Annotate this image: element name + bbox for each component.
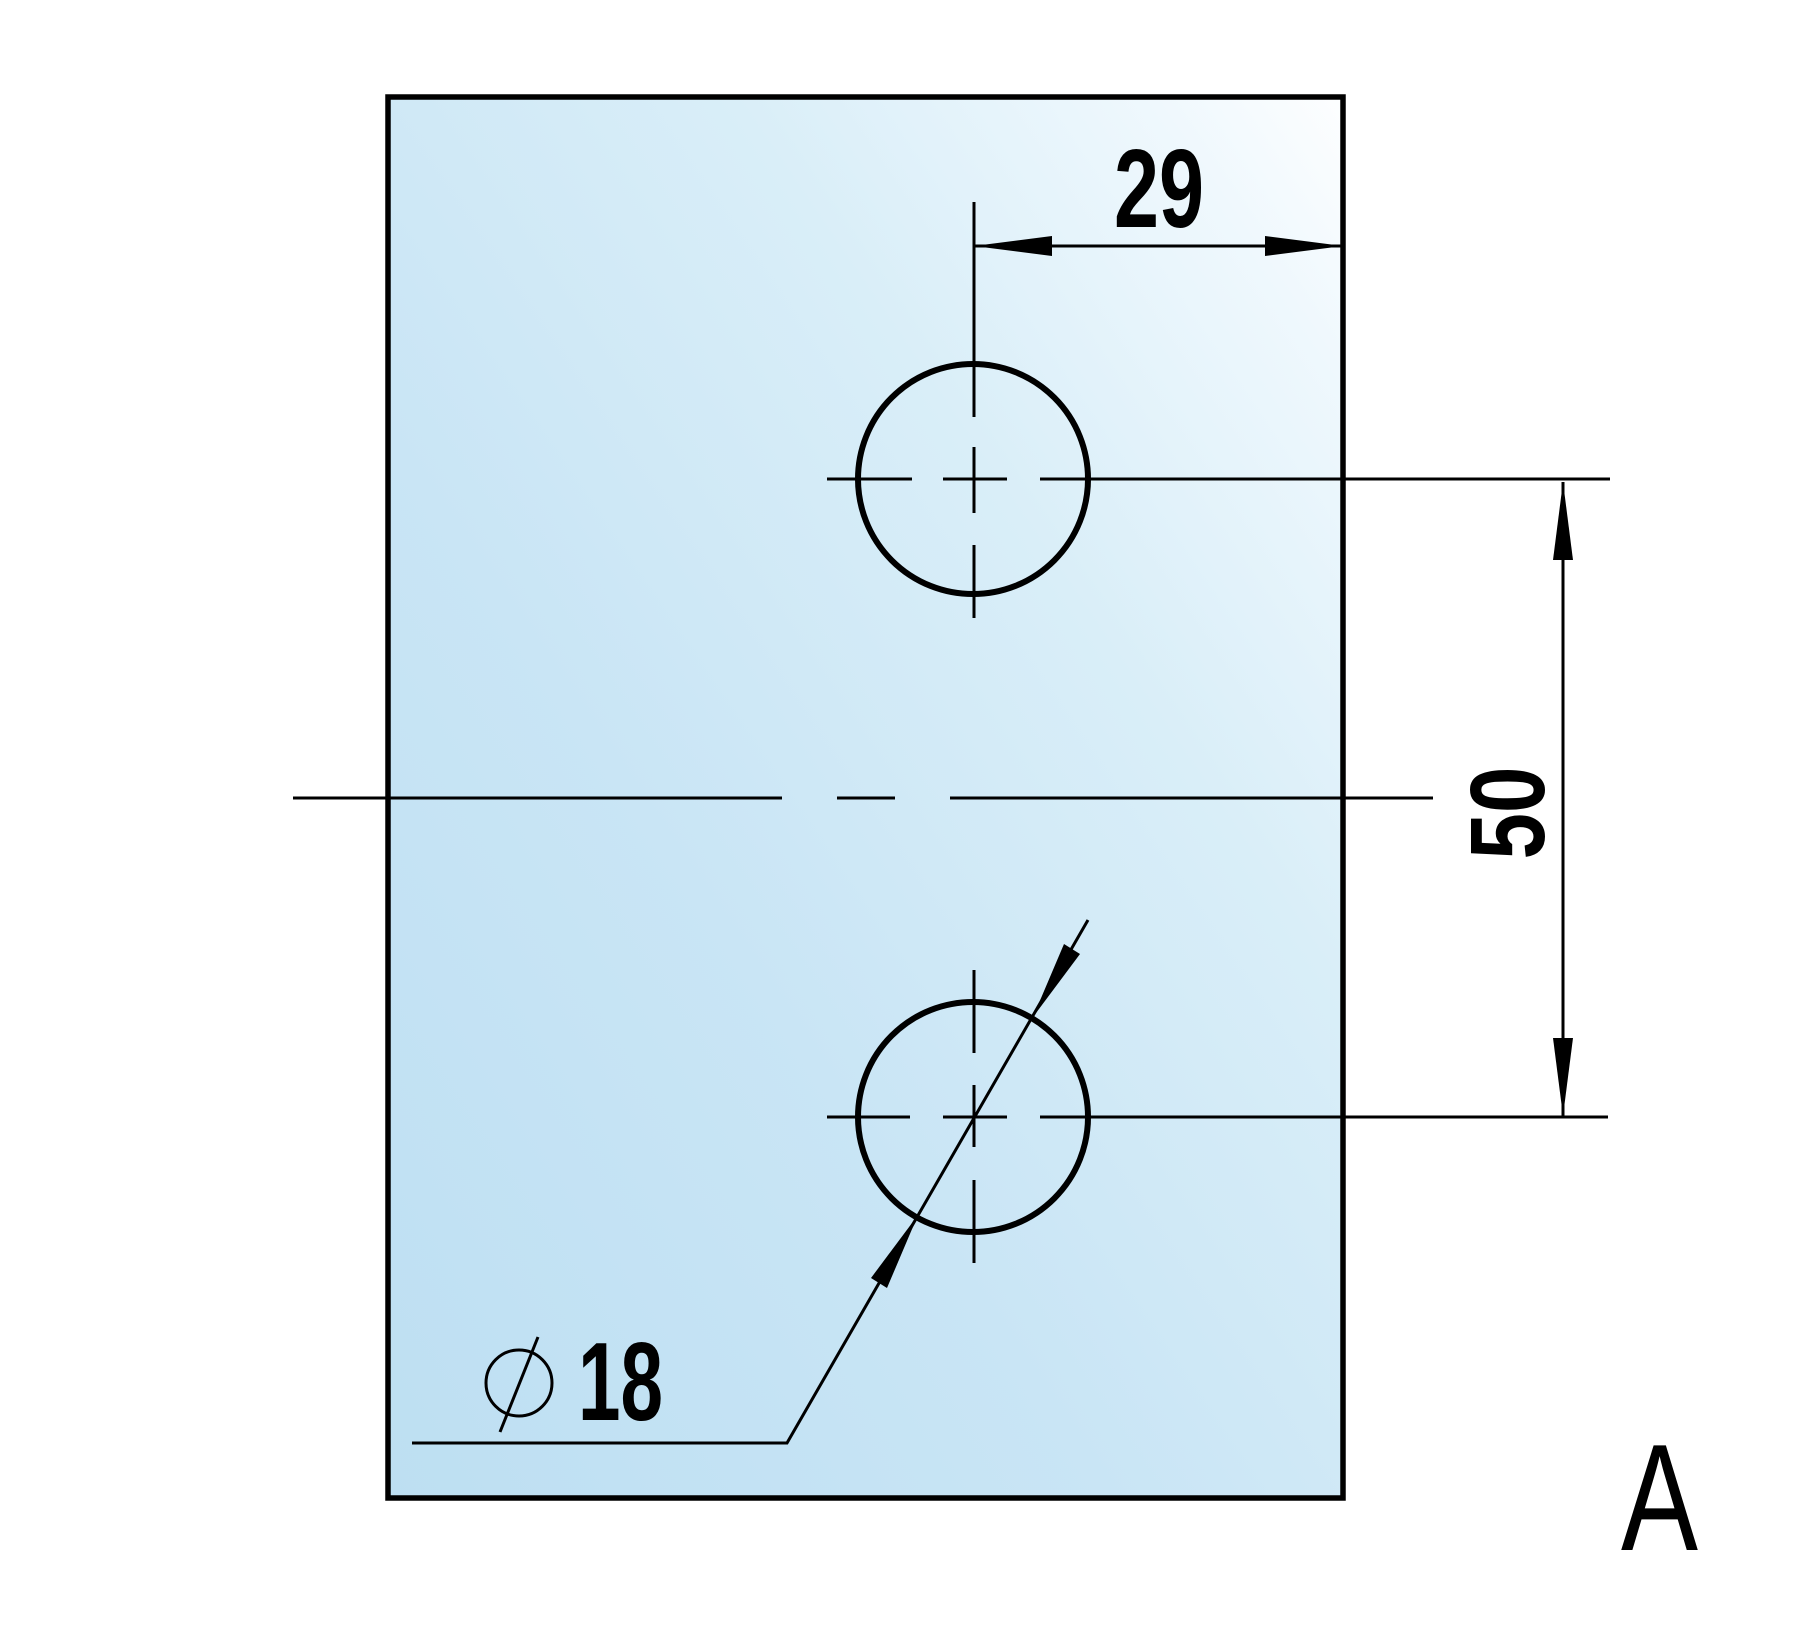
technical-drawing: 29 50 18 A — [0, 0, 1797, 1632]
dimension-arrowhead — [1553, 1038, 1573, 1116]
dimension-29-text: 29 — [1114, 127, 1204, 251]
dimension-50-text: 50 — [1449, 767, 1567, 860]
view-label-a: A — [1621, 1413, 1698, 1583]
drawing-page: 29 50 18 A — [0, 0, 1797, 1632]
diameter-18-text: 18 — [578, 1320, 663, 1444]
dimension-arrowhead — [1553, 482, 1573, 560]
